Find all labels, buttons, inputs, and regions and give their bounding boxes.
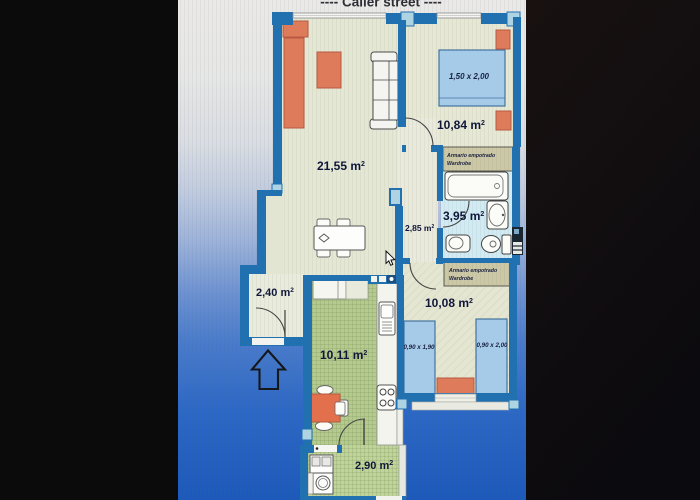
svg-text:10,84 m2: 10,84 m2	[437, 118, 485, 132]
svg-text:10,11 m2: 10,11 m2	[320, 348, 367, 362]
svg-text:10,08 m2: 10,08 m2	[425, 296, 473, 310]
svg-text:Wardrobe: Wardrobe	[447, 161, 471, 167]
svg-text:21,55 m2: 21,55 m2	[317, 159, 365, 173]
svg-text:Armario empotrado: Armario empotrado	[448, 268, 497, 274]
svg-text:---- Caller street ----: ---- Caller street ----	[320, 0, 442, 10]
svg-text:2,40 m2: 2,40 m2	[256, 287, 294, 299]
svg-text:0,90 x 1,90: 0,90 x 1,90	[404, 344, 436, 351]
svg-text:3,95 m2: 3,95 m2	[443, 209, 484, 223]
svg-text:1,50 x 2,00: 1,50 x 2,00	[449, 72, 490, 81]
svg-text:2,85 m2: 2,85 m2	[405, 223, 434, 233]
svg-text:0,90 x 2,00: 0,90 x 2,00	[477, 342, 509, 349]
svg-text:2,90 m2: 2,90 m2	[355, 460, 393, 472]
svg-text:Wardrobe: Wardrobe	[449, 276, 473, 282]
svg-text:Armario empotrado: Armario empotrado	[446, 153, 495, 159]
